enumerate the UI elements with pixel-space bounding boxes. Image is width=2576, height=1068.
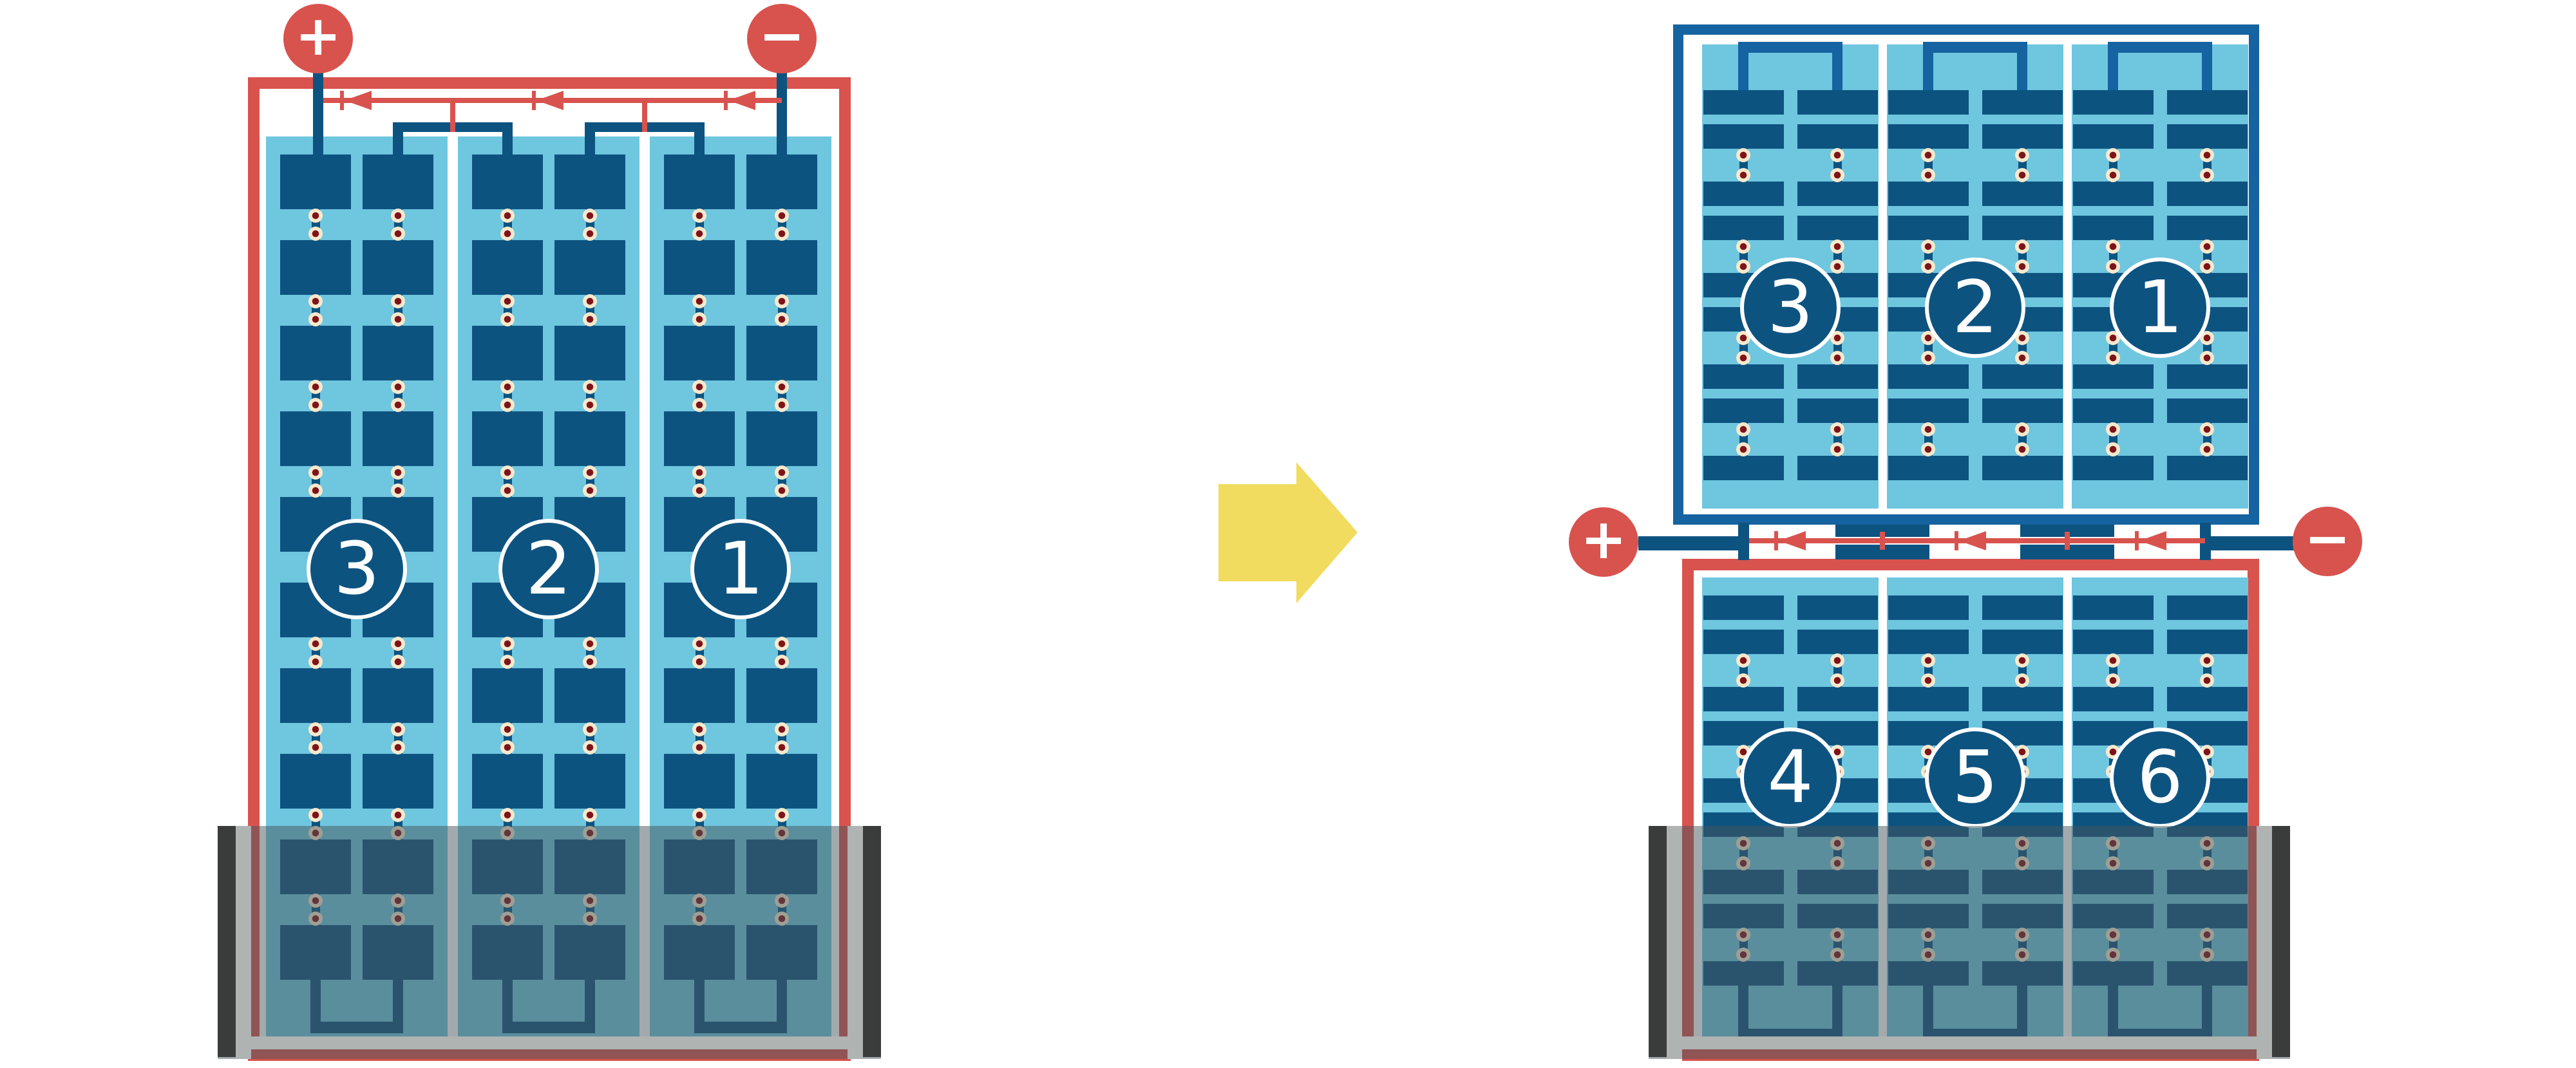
rivet-dot [583,722,597,736]
cell-top-connector-leg [1832,52,1842,91]
cell-number-circle: 6 [2110,727,2210,828]
cell-column: 2 [1887,44,2063,509]
rivet-dot [500,465,515,480]
diode-bar [724,91,728,110]
cell-top-connector [2108,42,2212,53]
diode-arrow-icon [1779,531,1806,550]
cell-bridge-leg [502,131,513,159]
rivet-dot [1921,168,1935,182]
rivet-dot [1830,653,1844,668]
rivet-dot [391,465,405,480]
cell-number: 6 [2137,742,2183,814]
rivet-dot [308,209,323,223]
rivet-dot [1921,239,1935,254]
rivet-dot [308,740,323,754]
plate [363,240,433,295]
rivet-dot [775,637,789,651]
battery-holder [218,826,881,1059]
cell-number: 2 [1952,272,1998,344]
plate [280,326,351,380]
positive-post [313,67,323,167]
holder-lining-bottom [251,1036,848,1049]
plate [2167,398,2248,423]
rivet-dot [775,312,789,326]
plate [2167,687,2248,711]
holder-wall-left [1649,826,1667,1057]
rivet-dot [1830,673,1844,688]
rivet-dot [1830,148,1844,162]
plate [2073,90,2154,115]
plate [472,411,543,466]
rivet-dot [2015,422,2029,436]
plate [746,668,817,723]
plate [2167,182,2248,206]
plate [472,155,543,209]
positive-terminal-after: + [1569,507,1638,577]
plate [2073,595,2154,620]
rivet-dot [391,808,405,822]
plate [1888,398,1969,423]
rivet-dot [692,655,706,669]
rivet-dot [391,227,405,241]
rivet-dot [583,808,597,822]
plate [363,326,433,380]
rivet-dot [583,655,597,669]
plate [1797,216,1878,240]
plate [472,240,543,295]
cell-number: 1 [717,533,763,605]
holder-lining-left [236,826,251,1059]
rivet-dot [391,483,405,498]
plate [746,411,817,466]
rivet-dot [308,398,323,412]
plate [746,240,817,295]
diode-arrow-icon [1959,531,1986,550]
rivet-dot [692,465,706,480]
rivet-dot [308,808,323,822]
plate [554,754,625,809]
plate [1888,595,1969,620]
plate [1982,398,2063,423]
plate [363,155,433,209]
rivet-dot [1736,653,1750,668]
plate [1703,182,1784,206]
plate [2167,90,2248,115]
plate [2073,630,2154,654]
plate [1797,456,1878,480]
rivet-dot [583,294,597,308]
plate [1982,124,2063,149]
cell-top-connector-leg [2017,52,2027,91]
plate [2073,182,2154,206]
positive-terminal-before: + [283,4,353,73]
rivet-dot [2200,673,2214,688]
rivet-dot [775,808,789,822]
holder-wall-right [2272,826,2290,1057]
plate [1982,216,2063,240]
plate [280,668,351,723]
rivet-dot [308,227,323,241]
rivet-dot [500,722,515,736]
plate [664,411,735,466]
diode-arrow-icon [345,91,372,110]
plate [280,754,351,809]
plate [1703,630,1784,654]
cell-column: 3 [1702,44,1879,509]
rivet-dot [1830,259,1844,274]
rivet-dot [583,380,597,394]
rivet-dot [1830,351,1844,365]
diode-bar [532,91,536,110]
plate [2073,216,2154,240]
plate [1888,687,1969,711]
plate [363,754,433,809]
rivet-dot [308,380,323,394]
rivet-dot [692,722,706,736]
plate [472,668,543,723]
plate [554,411,625,466]
rivet-dot [692,637,706,651]
rivet-dot [391,380,405,394]
plate [1982,456,2063,480]
plate [1982,595,2063,620]
diode-arrow-icon [728,91,755,110]
rivet-dot [1830,442,1844,456]
plate [1703,364,1784,389]
rivet-dot [583,398,597,412]
rivet-dot [1736,422,1750,436]
rivet-dot [2015,351,2029,365]
rivet-dot [2106,148,2120,162]
rivet-dot [775,483,789,498]
holder-lining-left [1667,826,1682,1059]
diode-bar [1955,531,1958,550]
rivet-dot [2200,442,2214,456]
plate [1888,216,1969,240]
rivet-dot [1921,351,1935,365]
rivet-dot [2200,259,2214,274]
cell-number-circle: 5 [1925,727,2025,828]
rivet-dot [2106,351,2120,365]
plate [1888,456,1969,480]
rivet-dot [1921,653,1935,668]
rivet-dot [500,380,515,394]
plate [363,411,433,466]
rivet-dot [391,740,405,754]
plate [664,668,735,723]
rivet-dot [583,312,597,326]
plate [1797,398,1878,423]
rivet-dot [308,637,323,651]
negative-post [777,67,787,167]
rivet-dot [692,227,706,241]
diagram-canvas: 321321456 + − + − [0,0,2576,1068]
rivet-dot [391,637,405,651]
rivet-dot [2106,653,2120,668]
rivet-dot [2200,239,2214,254]
plate [280,411,351,466]
rivet-dot [1736,442,1750,456]
current-path-stub [642,102,647,132]
rivet-dot [391,294,405,308]
cell-number-circle: 2 [1925,258,2025,358]
plate [1982,630,2063,654]
rivet-dot [775,227,789,241]
rivet-dot [2015,259,2029,274]
plate [1797,364,1878,389]
rivet-dot [2015,148,2029,162]
rivet-dot [692,740,706,754]
rivet-dot [500,312,515,326]
diode-arrow-icon [2139,531,2166,550]
holder-lining-right [848,826,863,1059]
rivet-dot [775,294,789,308]
rivet-dot [2015,442,2029,456]
plate [2073,456,2154,480]
rivet-dot [2015,168,2029,182]
plate [1982,90,2063,115]
rivet-dot [500,740,515,754]
rivet-dot [1921,673,1935,688]
plate [472,754,543,809]
plate [2073,124,2154,149]
rivet-dot [2200,422,2214,436]
rivet-dot [308,312,323,326]
plate [554,668,625,723]
plate [1982,182,2063,206]
rivet-dot [692,209,706,223]
plate [1982,364,2063,389]
cell-top-connector-leg [2108,52,2118,91]
rivet-dot [583,465,597,480]
holder-wall-left [218,826,236,1057]
current-path-stub [450,102,455,132]
rivet-dot [2106,422,2120,436]
rivet-dot [2015,653,2029,668]
cell-number-circle: 1 [690,519,791,619]
plate [1982,687,2063,711]
plate [1703,456,1784,480]
negative-terminal-after: − [2293,507,2362,576]
rivet-dot [1736,351,1750,365]
cell-top-connector-leg [1923,52,1933,91]
rivet-dot [1830,168,1844,182]
plate [2073,687,2154,711]
cell-number: 1 [2137,272,2183,344]
current-path-stub [2065,532,2070,550]
plus-symbol: + [295,8,341,64]
minus-symbol: − [2304,511,2351,567]
rivet-dot [2015,673,2029,688]
cell-bridge-leg [585,131,595,159]
rivet-dot [500,655,515,669]
plate [1888,90,1969,115]
cell-column: 1 [2072,44,2248,509]
rivet-dot [391,722,405,736]
rivet-dot [1921,442,1935,456]
rivet-dot [500,637,515,651]
cell-top-connector [1738,42,1842,53]
rivet-dot [2200,351,2214,365]
plate [1703,124,1784,149]
cell-top-connector [1923,42,2027,53]
cell-top-connector-leg [2202,52,2212,91]
plate [280,240,351,295]
rivet-dot [775,722,789,736]
rivet-dot [1736,673,1750,688]
rivet-dot [775,655,789,669]
battery-holder [1649,826,2290,1059]
plate [1797,90,1878,115]
plate [1703,687,1784,711]
rivet-dot [775,209,789,223]
holder-lining-right [2257,826,2272,1059]
cell-number-circle: 2 [498,519,599,619]
plate [2073,398,2154,423]
cell-number-circle: 1 [2110,258,2210,358]
rivet-dot [308,483,323,498]
plate [1888,182,1969,206]
positive-terminal-tab [1738,523,1749,560]
holder-wall-right [863,826,881,1057]
rivet-dot [1736,168,1750,182]
rivet-dot [2106,442,2120,456]
rivet-dot [2106,259,2120,274]
plate [2073,364,2154,389]
rivet-dot [1736,148,1750,162]
diode-bar [340,91,344,110]
plate [1888,124,1969,149]
rivet-dot [775,398,789,412]
cell-number-circle: 4 [1740,727,1841,828]
rivet-dot [1921,148,1935,162]
rivet-dot [692,312,706,326]
rivet-dot [500,227,515,241]
plate [1797,687,1878,711]
rivet-dot [692,398,706,412]
plate [2167,216,2248,240]
plate [1797,630,1878,654]
rivet-dot [1830,239,1844,254]
rivet-dot [1921,422,1935,436]
plate [746,754,817,809]
rivet-dot [2106,239,2120,254]
plate [1797,124,1878,149]
plate [2167,456,2248,480]
rivet-dot [775,380,789,394]
plate [1703,398,1784,423]
rivet-dot [775,740,789,754]
rivet-dot [391,209,405,223]
diode-bar [2135,531,2139,550]
cell-number: 4 [1767,742,1813,814]
cell-number: 3 [334,533,379,605]
plate [1797,595,1878,620]
rivet-dot [2200,653,2214,668]
plate [1703,90,1784,115]
plate [1703,595,1784,620]
cell-number: 5 [1952,742,1998,814]
minus-symbol: − [759,8,805,64]
rivet-dot [692,380,706,394]
plate [664,155,735,209]
diode-arrow-icon [536,91,563,110]
rivet-dot [692,808,706,822]
plate [363,668,433,723]
rivet-dot [775,465,789,480]
rivet-dot [692,483,706,498]
rivet-dot [2106,168,2120,182]
cell-top-connector-leg [1738,52,1748,91]
rivet-dot [1830,422,1844,436]
rivet-dot [1921,259,1935,274]
negative-terminal-bar [2205,536,2299,550]
rivet-dot [391,312,405,326]
plate [472,326,543,380]
plate [664,754,735,809]
plate [1797,182,1878,206]
rivet-dot [1736,239,1750,254]
rivet-dot [308,465,323,480]
rivet-dot [308,294,323,308]
diode-bar [1774,531,1778,550]
rivet-dot [692,294,706,308]
cell-bridge-leg [694,131,705,159]
rivet-dot [391,398,405,412]
transform-right-arrow-icon [1218,462,1358,603]
rivet-dot [500,483,515,498]
rivet-dot [308,655,323,669]
rivet-dot [500,209,515,223]
plate [1888,630,1969,654]
cell-bridge-leg [393,131,403,159]
cell-number: 3 [1767,272,1813,344]
rivet-dot [583,227,597,241]
rivet-dot [308,722,323,736]
rivet-dot [2200,148,2214,162]
rivet-dot [500,294,515,308]
rivet-dot [583,740,597,754]
plate [554,240,625,295]
rivet-dot [583,637,597,651]
plate [664,326,735,380]
holder-lining-bottom [1682,1036,2257,1049]
plate [1703,216,1784,240]
plate [746,326,817,380]
rivet-dot [500,808,515,822]
rivet-dot [2106,673,2120,688]
plate [2167,595,2248,620]
rivet-dot [583,209,597,223]
rivet-dot [2015,239,2029,254]
rivet-dot [500,398,515,412]
cell-number: 2 [526,533,571,605]
plate [2167,630,2248,654]
negative-terminal-before: − [747,4,817,73]
rivet-dot [2200,168,2214,182]
rivet-dot [1736,259,1750,274]
plate [664,240,735,295]
cell-number-circle: 3 [1740,258,1841,358]
plate [554,155,625,209]
plate [2167,124,2248,149]
rivet-dot [583,483,597,498]
plate [554,326,625,380]
cell-number-circle: 3 [307,519,407,619]
plate [2167,364,2248,389]
plate [1888,364,1969,389]
rivet-dot [391,655,405,669]
